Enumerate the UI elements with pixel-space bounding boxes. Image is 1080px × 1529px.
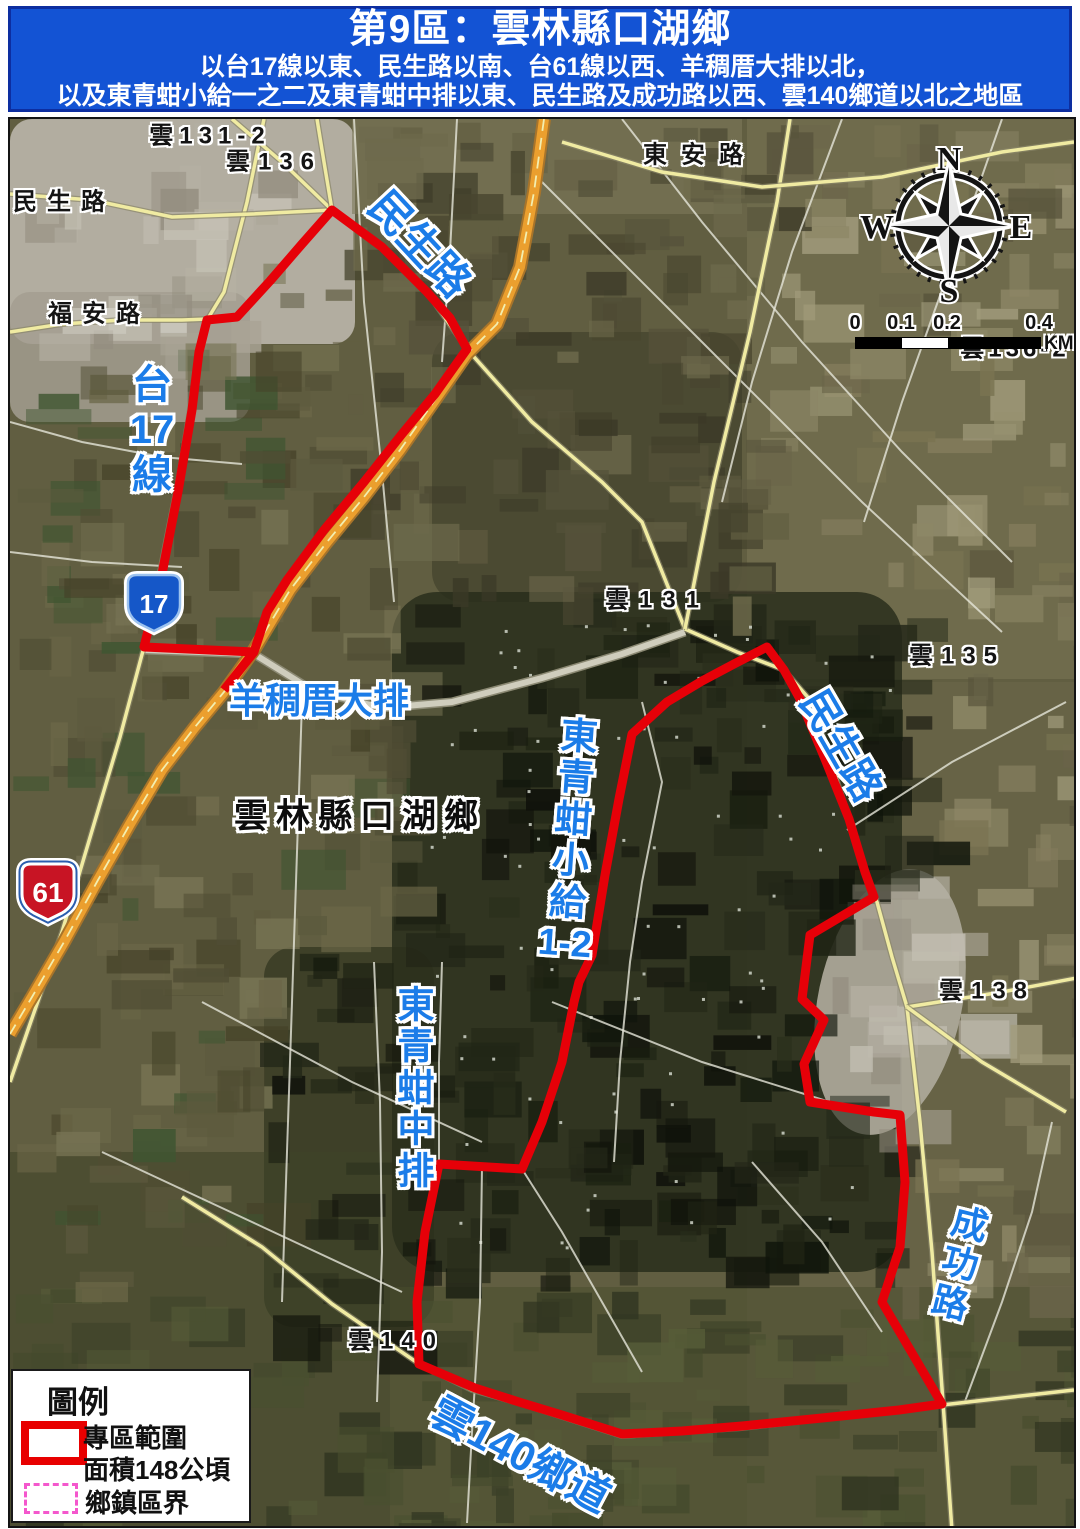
pond-speck: [463, 1035, 466, 1038]
field-patch: [256, 352, 302, 392]
field-patch: [769, 883, 811, 906]
field-patch: [563, 726, 591, 750]
pond-speck: [624, 628, 627, 631]
field-patch: [489, 897, 519, 917]
field-patch: [717, 718, 742, 752]
field-patch: [732, 772, 771, 796]
field-patch: [885, 836, 934, 878]
field-patch: [863, 737, 913, 780]
field-patch: [492, 1190, 519, 1214]
pond-speck: [517, 649, 520, 652]
field-patch: [681, 356, 729, 375]
field-patch: [332, 1350, 377, 1361]
pond-speck: [714, 634, 717, 637]
field-patch: [655, 728, 693, 742]
field-patch: [1008, 189, 1062, 219]
field-patch: [995, 595, 1043, 622]
pond-speck: [669, 1072, 672, 1075]
pond-speck: [762, 987, 765, 990]
pond-speck: [443, 836, 446, 839]
field-patch: [865, 1222, 901, 1240]
field-patch: [1044, 945, 1074, 965]
pond-speck: [529, 823, 532, 826]
field-patch: [735, 1162, 799, 1183]
field-patch: [770, 390, 818, 431]
field-patch: [503, 753, 553, 788]
field-patch: [152, 1032, 176, 1076]
pond-speck: [634, 998, 637, 1001]
satellite-map-image: 1761: [10, 119, 1074, 1526]
legend-township-label: 鄉鎮區界: [85, 1483, 189, 1520]
pond-speck: [871, 655, 874, 658]
field-patch: [459, 732, 513, 750]
field-patch: [537, 1293, 592, 1333]
field-patch: [787, 755, 849, 777]
page: 第9區：雲林縣口湖鄉 以台17線以東、民生路以南、台61線以西、羊稠厝大排以北，…: [0, 0, 1080, 1529]
field-patch: [281, 850, 346, 890]
field-patch: [707, 688, 727, 708]
field-patch: [49, 637, 71, 677]
field-patch: [493, 460, 518, 494]
pond-speck: [675, 1180, 678, 1183]
field-patch: [546, 1258, 570, 1291]
field-patch: [589, 321, 614, 338]
field-patch: [375, 807, 431, 836]
pond-speck: [431, 846, 434, 849]
pond-speck: [514, 666, 517, 669]
field-patch: [496, 1488, 514, 1523]
field-patch: [1058, 603, 1074, 641]
field-patch: [974, 674, 988, 700]
field-patch: [243, 1377, 304, 1408]
field-patch: [548, 1497, 592, 1509]
field-patch: [300, 954, 340, 971]
field-patch: [173, 968, 229, 982]
field-patch: [365, 1459, 388, 1503]
field-patch: [842, 1477, 899, 1511]
field-patch: [634, 918, 687, 959]
pond-speck: [647, 624, 650, 627]
pond-speck: [671, 1103, 674, 1106]
pond-speck: [567, 831, 570, 834]
field-patch: [370, 841, 422, 862]
field-patch: [387, 749, 407, 794]
field-patch: [775, 620, 816, 654]
route-number-61: 61: [32, 877, 63, 908]
field-patch: [844, 691, 874, 718]
field-patch: [661, 757, 691, 789]
field-patch: [228, 507, 255, 519]
field-patch: [1066, 1499, 1074, 1526]
field-patch: [850, 349, 906, 380]
field-patch: [386, 1044, 441, 1062]
field-patch: [526, 737, 564, 750]
field-patch: [744, 747, 761, 764]
field-patch: [332, 1194, 385, 1217]
field-patch: [174, 511, 199, 557]
field-patch: [1010, 1025, 1042, 1063]
field-patch: [318, 1324, 341, 1342]
field-patch: [873, 431, 936, 442]
field-patch: [240, 451, 291, 463]
pond-speck: [757, 1036, 760, 1039]
field-patch: [884, 1522, 925, 1526]
field-patch: [653, 904, 709, 915]
field-patch: [920, 124, 939, 161]
pond-speck: [738, 908, 741, 911]
field-patch: [449, 1487, 479, 1503]
field-patch: [1070, 1064, 1074, 1098]
field-patch: [711, 264, 737, 292]
pond-speck: [528, 1097, 531, 1100]
pond-speck: [829, 1218, 832, 1221]
field-patch: [684, 1348, 702, 1378]
field-patch: [482, 575, 497, 601]
header-subtitle-1: 以台17線以東、民生路以南、台61線以西、羊稠厝大排以北，: [200, 53, 881, 81]
field-patch: [312, 597, 340, 632]
field-patch: [217, 917, 237, 945]
field-patch: [348, 394, 363, 414]
field-patch: [586, 272, 626, 296]
field-patch: [464, 1524, 512, 1526]
field-patch: [527, 965, 544, 991]
pond-speck: [492, 1058, 495, 1061]
field-patch: [218, 1070, 251, 1112]
pond-speck: [459, 1222, 462, 1225]
field-patch: [367, 158, 424, 199]
field-patch: [112, 865, 160, 886]
field-patch: [321, 906, 371, 952]
field-patch: [311, 775, 355, 799]
field-patch: [54, 597, 103, 624]
pond-speck: [520, 947, 523, 950]
field-patch: [37, 1008, 100, 1048]
field-patch: [97, 923, 118, 956]
field-patch: [529, 576, 574, 602]
field-patch: [592, 1362, 639, 1383]
field-patch: [39, 394, 80, 409]
field-patch: [401, 230, 448, 246]
field-patch: [17, 1144, 56, 1172]
field-patch: [785, 1014, 838, 1036]
pond-speck: [528, 790, 531, 793]
field-patch: [1009, 524, 1036, 547]
field-patch: [137, 417, 175, 452]
field-patch: [729, 986, 776, 1013]
field-patch: [829, 656, 895, 688]
pond-speck: [536, 740, 539, 743]
field-patch: [714, 824, 763, 856]
field-patch: [694, 746, 712, 764]
field-patch: [977, 309, 1018, 320]
field-patch: [290, 459, 342, 491]
field-patch: [730, 566, 772, 590]
field-patch: [670, 486, 702, 502]
field-patch: [622, 846, 640, 857]
field-patch: [969, 1260, 994, 1298]
field-patch: [571, 1148, 608, 1169]
field-patch: [747, 1466, 764, 1483]
field-patch: [1046, 734, 1074, 750]
field-patch: [727, 300, 771, 319]
field-patch: [999, 766, 1036, 792]
field-patch: [612, 1292, 638, 1319]
field-patch: [1035, 1422, 1074, 1452]
pond-speck: [779, 815, 782, 818]
field-patch: [453, 578, 469, 607]
field-patch: [874, 125, 900, 157]
field-patch: [449, 226, 499, 254]
field-patch: [700, 1321, 761, 1332]
field-patch: [756, 1340, 793, 1378]
route-number-17: 17: [140, 589, 169, 619]
field-patch: [710, 572, 728, 599]
field-patch: [346, 1163, 409, 1175]
pond-speck: [739, 1000, 742, 1003]
pond-speck: [819, 849, 822, 852]
field-patch: [534, 1430, 562, 1467]
field-patch: [746, 440, 785, 453]
pond-speck: [749, 626, 752, 629]
field-patch: [1057, 776, 1074, 800]
field-patch: [907, 618, 948, 642]
field-patch: [209, 549, 239, 591]
field-patch: [227, 697, 279, 719]
field-patch: [724, 912, 765, 950]
field-patch: [43, 525, 73, 542]
legend-township-swatch: [24, 1483, 78, 1514]
field-patch: [565, 525, 601, 571]
field-patch: [374, 327, 396, 345]
field-patch: [906, 716, 932, 729]
pond-speck: [717, 815, 720, 818]
field-patch: [500, 499, 539, 512]
field-patch: [289, 1501, 318, 1515]
field-patch: [1019, 1331, 1074, 1347]
field-patch: [51, 722, 68, 766]
pond-speck: [647, 925, 650, 928]
pond-speck: [664, 681, 667, 684]
field-patch: [784, 1384, 847, 1405]
field-patch: [557, 352, 578, 363]
field-patch: [226, 1026, 288, 1041]
field-patch: [68, 758, 96, 788]
page-title: 第9區：雲林縣口湖鄉: [349, 8, 732, 52]
field-patch: [551, 837, 581, 862]
field-patch: [1045, 493, 1069, 505]
field-patch: [833, 977, 849, 1014]
pond-speck: [561, 1241, 564, 1244]
pond-speck: [690, 1221, 693, 1224]
pond-speck: [451, 743, 454, 746]
pond-speck: [559, 1121, 562, 1124]
pond-speck: [585, 625, 588, 628]
field-patch: [822, 519, 863, 535]
field-patch: [552, 1513, 603, 1526]
field-patch: [850, 1046, 873, 1072]
field-patch: [1070, 806, 1074, 826]
field-patch: [899, 1431, 937, 1452]
map-canvas: 1761 雲131-2雲136民生路福安路東安路雲131雲135雲138雲140…: [8, 117, 1076, 1528]
pond-speck: [594, 1194, 597, 1197]
field-patch: [658, 852, 696, 885]
field-patch: [1019, 940, 1039, 980]
field-patch: [460, 143, 493, 162]
field-patch: [994, 412, 1023, 435]
field-patch: [605, 1209, 620, 1235]
field-patch: [199, 1031, 225, 1044]
field-patch: [511, 151, 525, 195]
field-patch: [830, 1220, 849, 1233]
field-patch: [713, 1413, 768, 1457]
field-patch: [266, 1506, 291, 1526]
field-patch: [375, 373, 404, 402]
pond-speck: [617, 737, 620, 740]
field-patch: [343, 963, 394, 989]
field-patch: [1011, 1466, 1037, 1505]
legend-box: 圖例 專區範圍 面積148公頃 鄉鎮區界: [11, 1369, 251, 1523]
field-patch: [719, 503, 748, 533]
pond-speck: [746, 638, 749, 641]
field-patch: [470, 252, 508, 277]
field-patch: [307, 975, 322, 987]
field-patch: [688, 1202, 717, 1235]
field-patch: [516, 332, 572, 345]
field-patch: [112, 980, 172, 1009]
field-patch: [726, 1257, 770, 1289]
field-patch: [171, 1307, 228, 1342]
pond-speck: [474, 729, 477, 732]
field-patch: [78, 427, 132, 439]
field-patch: [700, 128, 727, 142]
pond-speck: [505, 630, 508, 633]
route-shield-61: 61: [22, 864, 74, 920]
pond-speck: [465, 1143, 468, 1146]
pond-speck: [825, 662, 828, 665]
field-patch: [903, 1286, 920, 1321]
field-patch: [590, 1200, 652, 1226]
pond-speck: [622, 839, 625, 842]
field-patch: [81, 523, 125, 566]
field-patch: [83, 1523, 123, 1526]
field-patch: [894, 680, 933, 694]
field-patch: [580, 1237, 610, 1265]
field-patch: [65, 200, 81, 230]
field-patch: [283, 1055, 302, 1078]
field-patch: [978, 1185, 1015, 1196]
field-patch: [620, 1240, 638, 1285]
field-patch: [497, 1431, 528, 1451]
pond-speck: [702, 998, 705, 1001]
field-patch: [261, 510, 288, 545]
field-patch: [165, 337, 187, 379]
field-patch: [669, 1329, 705, 1349]
field-patch: [196, 239, 226, 272]
pond-speck: [504, 855, 507, 858]
legend-zone-swatch: [21, 1421, 87, 1465]
field-patch: [415, 604, 460, 627]
field-patch: [1001, 290, 1059, 309]
pond-speck: [760, 979, 763, 982]
field-patch: [458, 530, 488, 564]
pond-speck: [420, 1170, 423, 1173]
field-patch: [1050, 443, 1065, 467]
field-patch: [767, 132, 814, 174]
field-patch: [39, 333, 90, 361]
field-patch: [894, 1469, 924, 1487]
field-patch: [903, 232, 943, 253]
field-patch: [777, 1037, 792, 1072]
field-patch: [347, 638, 390, 661]
legend-zone-sublabel: 面積148公頃: [83, 1450, 230, 1487]
field-patch: [1005, 1098, 1034, 1126]
field-patch: [205, 418, 262, 431]
field-patch: [647, 968, 684, 988]
pond-speck: [637, 997, 640, 1000]
field-patch: [20, 639, 52, 670]
pond-speck: [677, 925, 680, 928]
field-patch: [589, 950, 640, 972]
pond-speck: [518, 865, 521, 868]
field-patch: [419, 1301, 452, 1323]
pond-speck: [832, 813, 835, 816]
field-patch: [184, 894, 231, 918]
field-patch: [795, 291, 815, 321]
field-patch: [668, 1153, 723, 1172]
pond-speck: [851, 1186, 854, 1189]
header-subtitle-2: 以及東青蚶小給一之二及東青蚶中排以東、民生路及成功路以西、雲140鄉道以北之地區: [57, 82, 1024, 110]
field-patch: [1027, 1126, 1061, 1155]
field-patch: [123, 898, 139, 920]
field-patch: [449, 194, 503, 220]
pond-speck: [612, 1092, 615, 1095]
field-patch: [422, 1381, 441, 1401]
field-patch: [232, 873, 252, 895]
field-patch: [783, 1224, 804, 1264]
field-patch: [16, 1294, 54, 1323]
field-patch: [690, 1299, 726, 1314]
field-patch: [547, 411, 575, 449]
field-patch: [871, 1053, 900, 1084]
field-patch: [822, 172, 848, 200]
field-patch: [664, 128, 698, 142]
field-patch: [400, 461, 419, 490]
field-patch: [67, 1205, 98, 1226]
field-patch: [624, 1047, 657, 1060]
field-patch: [316, 437, 373, 450]
pond-speck: [787, 693, 790, 696]
field-patch: [26, 409, 91, 424]
field-patch: [576, 1393, 630, 1418]
field-patch: [680, 1231, 696, 1242]
pond-speck: [587, 1209, 590, 1212]
pond-speck: [581, 854, 584, 857]
field-patch: [552, 875, 597, 885]
field-patch: [1057, 1351, 1074, 1373]
pond-speck: [675, 736, 678, 739]
pond-speck: [436, 975, 439, 978]
field-patch: [662, 363, 683, 405]
field-patch: [102, 465, 137, 480]
field-patch: [280, 293, 304, 308]
pond-speck: [889, 689, 892, 692]
field-patch: [490, 975, 505, 990]
field-patch: [713, 1035, 771, 1050]
field-patch: [32, 1344, 64, 1370]
field-patch: [380, 887, 437, 917]
field-patch: [1030, 1286, 1074, 1318]
field-patch: [516, 1413, 532, 1424]
